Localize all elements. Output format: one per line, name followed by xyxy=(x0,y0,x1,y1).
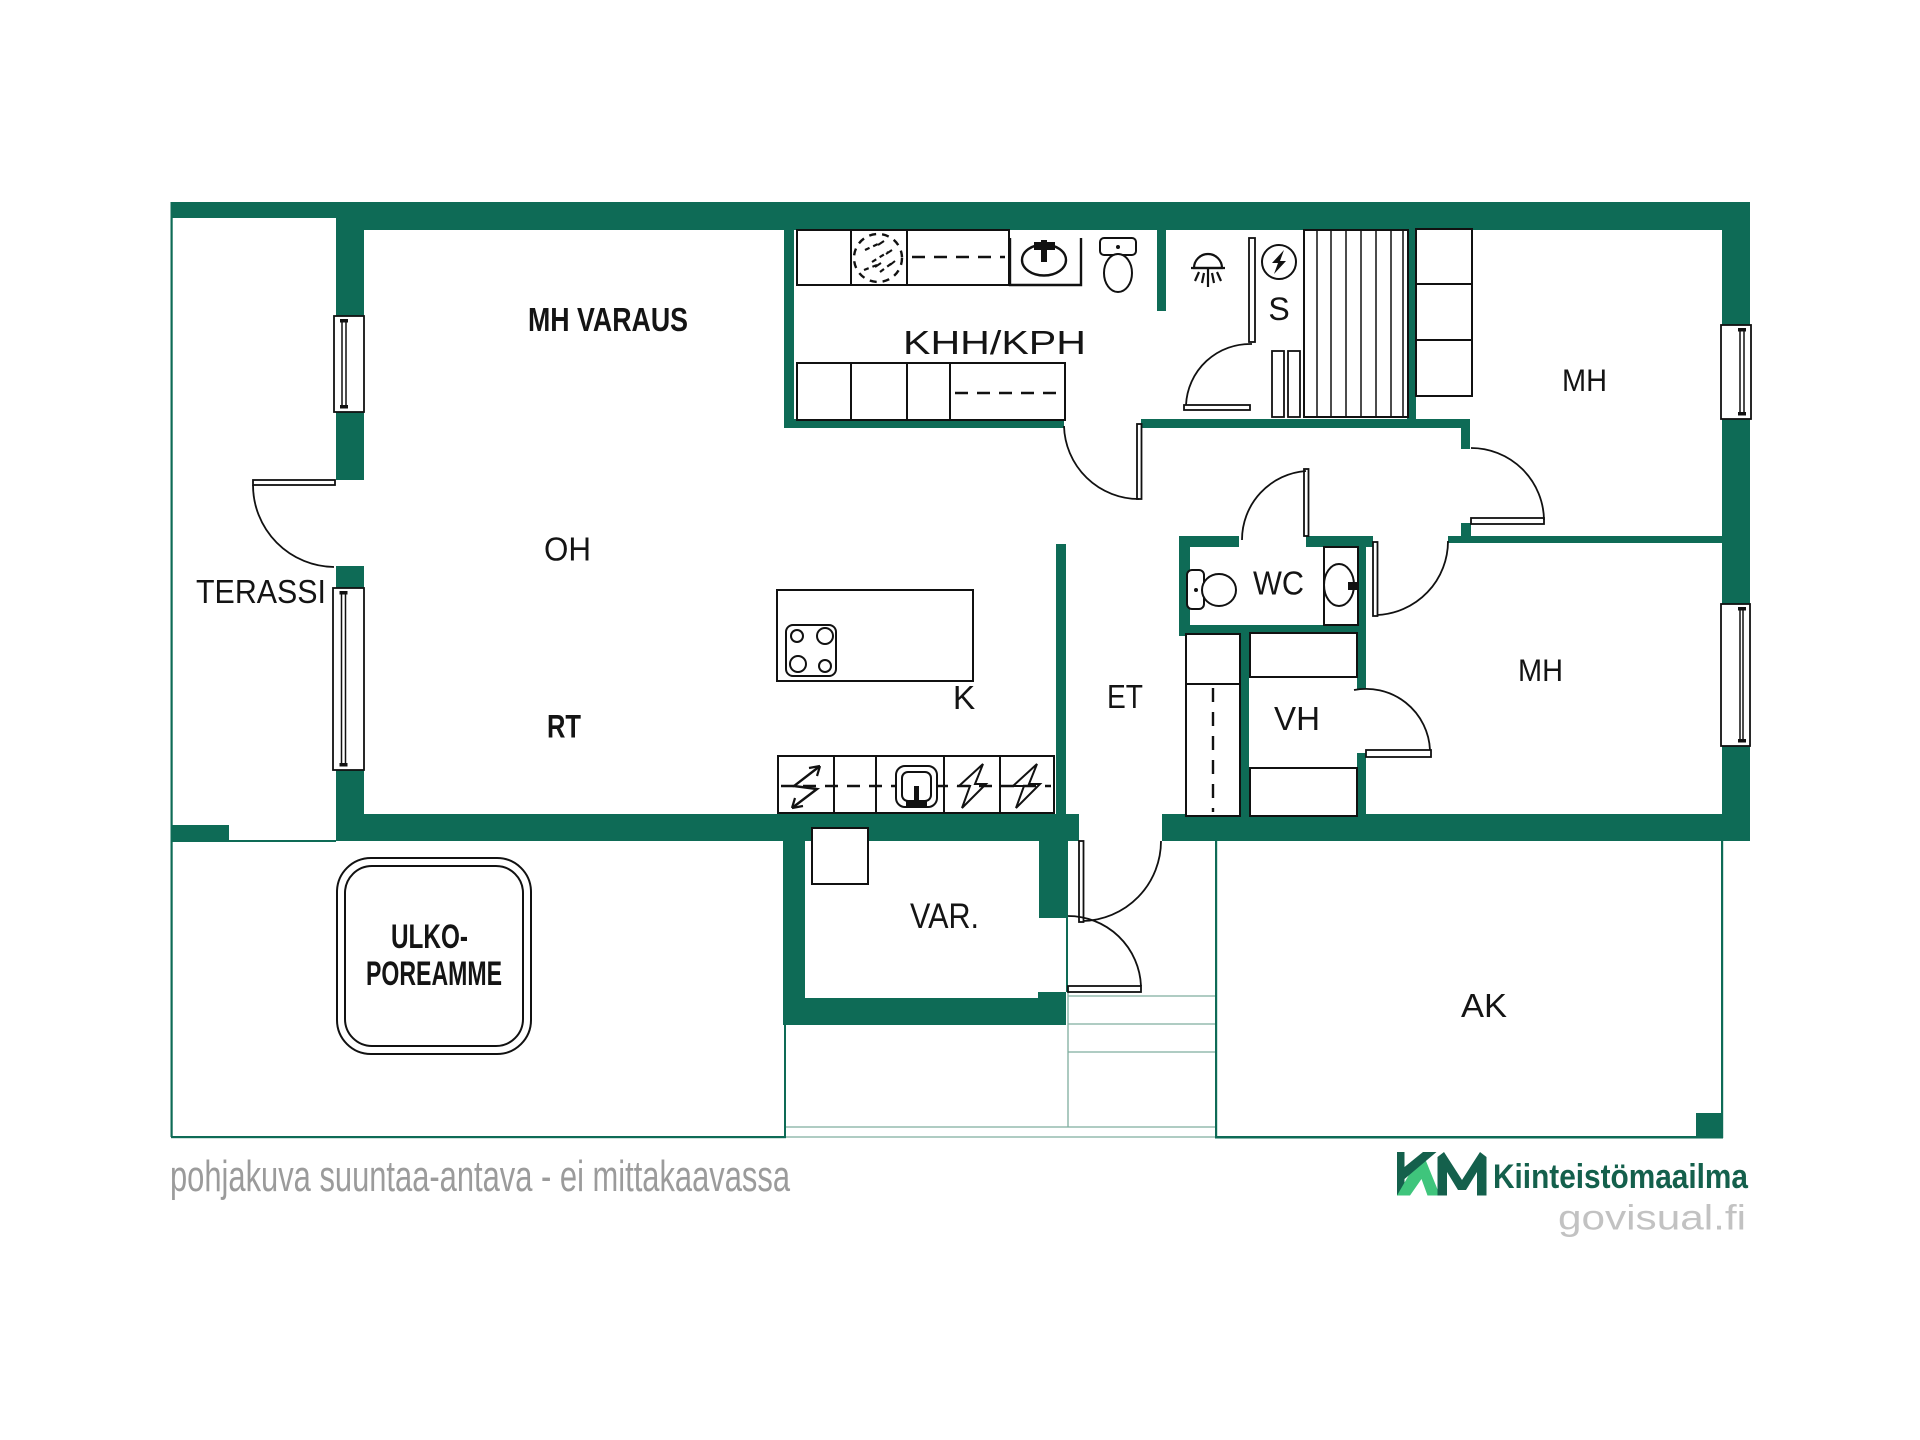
svg-text:OH: OH xyxy=(544,532,591,569)
svg-text:MH VARAUS: MH VARAUS xyxy=(528,302,688,339)
svg-text:MH: MH xyxy=(1562,362,1607,398)
svg-text:Kiinteistömaailma: Kiinteistömaailma xyxy=(1493,1158,1749,1196)
svg-text:ULKO-: ULKO- xyxy=(391,918,468,956)
svg-text:VH: VH xyxy=(1274,701,1320,738)
svg-text:WC: WC xyxy=(1253,566,1304,603)
svg-text:AK: AK xyxy=(1461,988,1507,1025)
svg-text:KHH/KPH: KHH/KPH xyxy=(903,325,1086,362)
svg-text:pohjakuva suuntaa-antava - ei: pohjakuva suuntaa-antava - ei mittakaava… xyxy=(170,1152,790,1201)
svg-text:MH: MH xyxy=(1518,652,1563,688)
svg-text:ET: ET xyxy=(1107,679,1143,716)
svg-text:RT: RT xyxy=(547,709,581,745)
svg-text:govisual.fi: govisual.fi xyxy=(1558,1199,1746,1238)
svg-text:TERASSI: TERASSI xyxy=(196,574,326,611)
svg-text:POREAMME: POREAMME xyxy=(366,955,502,993)
svg-text:VAR.: VAR. xyxy=(910,897,979,936)
svg-text:K: K xyxy=(953,680,975,717)
svg-text:S: S xyxy=(1268,291,1289,327)
